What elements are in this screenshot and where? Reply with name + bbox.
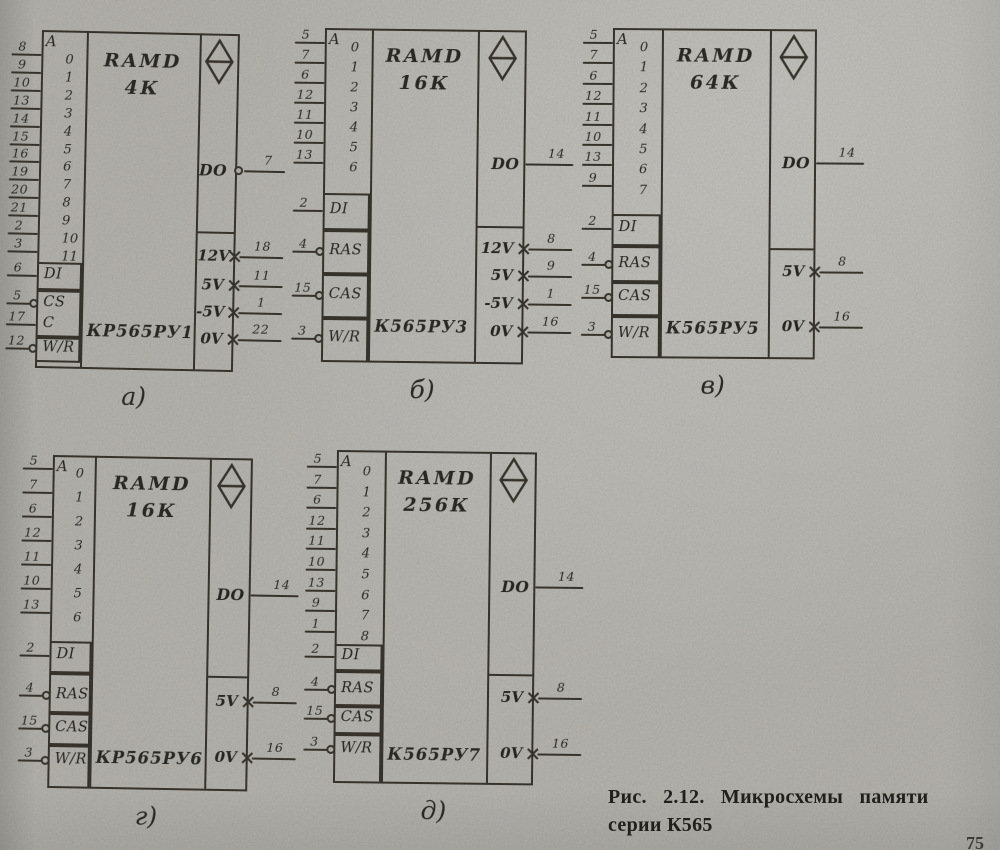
address-bit-digit: 4: [74, 562, 83, 577]
power-pin-number: 22: [246, 321, 276, 337]
power-pin-number: 16: [827, 309, 857, 324]
power-pin-stub: [238, 312, 282, 315]
inversion-bubble: [604, 293, 613, 302]
control-pin-number: 3: [286, 323, 318, 338]
inversion-bubble: [604, 260, 613, 269]
address-pin-number: 12: [289, 87, 321, 102]
address-pin-stub: [295, 42, 325, 44]
power-pin-label: 0V: [770, 317, 804, 335]
address-bit-digit: 7: [63, 178, 72, 193]
power-pin-label: 5V: [477, 266, 513, 284]
address-pin-stub: [294, 82, 324, 84]
address-pin-number: 15: [5, 128, 37, 144]
chip-part-number: КР565РУ1: [87, 321, 195, 342]
power-pin-label: 0V: [488, 744, 522, 762]
address-bit-digit: 8: [62, 196, 71, 211]
address-pin-number: 9: [6, 56, 38, 72]
control-pin-label: DI: [619, 219, 637, 235]
power-pin-stub: [527, 331, 571, 334]
power-pin-number: 9: [536, 258, 566, 273]
address-pin-stub: [582, 164, 612, 166]
power-pin-stub: [537, 753, 581, 756]
address-pin-stub: [293, 162, 323, 164]
power-pin-number: 16: [260, 740, 290, 756]
chip-type-label: RAMD: [662, 42, 770, 70]
address-bit-digit: 2: [75, 514, 84, 529]
address-pin-number: 8: [7, 38, 39, 54]
power-pin-label: 0V: [195, 329, 222, 348]
control-pin-label: W/R: [42, 339, 75, 356]
power-pin-number: 16: [535, 314, 565, 329]
output-pin-stub: [244, 170, 285, 173]
chip-capacity-label: 4К: [86, 74, 200, 103]
control-pin-number: 6: [2, 259, 34, 275]
address-pin-number: 11: [16, 548, 48, 564]
address-bit-digit: 3: [350, 100, 358, 115]
address-pin-number: 11: [289, 107, 321, 122]
address-bit-digit: 10: [61, 231, 78, 246]
address-pin-stub: [583, 42, 613, 44]
address-bit-digit: 5: [73, 586, 82, 601]
control-pin-number: 3: [576, 319, 608, 334]
chip-part-number: К565РУ5: [666, 318, 760, 338]
address-pin-number: 13: [577, 149, 609, 164]
power-pin-label: 12V: [477, 239, 513, 257]
address-bit-digit: 0: [640, 40, 648, 55]
address-pin-stub: [306, 548, 336, 550]
address-bit-digit: 5: [639, 142, 647, 157]
data-output-label: DO: [199, 160, 225, 180]
power-pin-number: 8: [261, 684, 291, 700]
inversion-bubble: [327, 685, 336, 694]
address-pin-number: 16: [4, 146, 36, 162]
address-group-label: A: [329, 30, 340, 48]
control-pin-number: 15: [287, 280, 319, 295]
inversion-bubble: [41, 724, 50, 733]
address-pin-number: 5: [578, 27, 610, 42]
power-pin-stub: [239, 285, 283, 288]
address-pin-stub: [583, 83, 613, 85]
address-pin-number: 6: [578, 68, 610, 83]
chip-type-label: RAMD: [371, 43, 477, 71]
output-pin-stub: [535, 586, 583, 589]
address-bit-digit: 5: [349, 140, 357, 155]
power-pin-label: 12V: [197, 246, 224, 265]
address-bit-digit: 2: [640, 81, 648, 96]
power-pin-stub: [819, 326, 863, 328]
data-output-label: DO: [209, 585, 244, 605]
control-pin-label: CAS: [341, 709, 374, 725]
power-pin-number: 8: [546, 680, 576, 695]
power-pin-stub: [538, 697, 582, 700]
figure-caption-line2: серии К565: [608, 811, 993, 839]
control-pin-number: 2: [288, 195, 320, 210]
control-pin-label: RAS: [341, 680, 374, 696]
chip-capacity-label: 64К: [662, 69, 770, 97]
output-power-separator: [768, 248, 815, 250]
memory-diamond-icon: [216, 463, 247, 510]
inversion-bubble: [327, 714, 336, 723]
inversion-bubble: [314, 334, 323, 343]
power-pin-label: 5V: [208, 692, 238, 711]
address-pin-stub: [295, 62, 325, 64]
address-group-label: A: [617, 30, 628, 48]
control-pin-label: DI: [56, 646, 75, 662]
control-pin-number: 15: [299, 703, 331, 718]
address-pin-stub: [582, 103, 612, 105]
power-pin-label: 0V: [476, 322, 512, 340]
address-pin-number: 10: [289, 127, 321, 142]
address-bit-digit: 4: [639, 122, 647, 137]
address-bit-digit: 3: [362, 526, 370, 541]
control-pin-number: 2: [577, 213, 609, 228]
address-pin-stub: [306, 527, 336, 529]
control-pin-number: 4: [299, 674, 331, 689]
address-pin-number: 5: [18, 452, 50, 468]
address-group-label: A: [46, 32, 57, 50]
output-pin-stub: [816, 162, 864, 164]
address-pin-number: 10: [301, 554, 333, 569]
address-bit-digit: 4: [362, 547, 370, 562]
chip-type-label: RAMD: [384, 465, 489, 493]
address-pin-number: 12: [17, 524, 49, 540]
control-pin-label: DI: [341, 647, 360, 663]
address-group-label: A: [341, 452, 352, 470]
output-pin-number: 14: [541, 146, 571, 161]
chip-type-label: RAMD: [94, 470, 209, 499]
address-pin-stub: [582, 144, 612, 146]
control-pin-number: 2: [15, 639, 47, 655]
page-number: 75: [966, 833, 984, 850]
output-pin-number: 7: [253, 152, 283, 168]
memory-diamond-icon: [498, 457, 529, 503]
address-bit-digit: 4: [64, 124, 73, 139]
control-pin-stub: [582, 228, 612, 230]
address-pin-number: 7: [17, 476, 49, 492]
power-pin-stub: [528, 303, 572, 306]
address-pin-number: 2: [3, 217, 35, 233]
address-bit-digit: 5: [63, 142, 72, 157]
power-pin-label: -5V: [477, 294, 513, 312]
control-pin-number: 17: [1, 308, 33, 324]
output-pin-stub: [251, 594, 299, 597]
inversion-bubble: [326, 745, 335, 754]
chip-part-number: КР565РУ6: [96, 748, 203, 769]
address-pin-stub: [307, 466, 337, 468]
figure-caption-line1: Рис. 2.12. Микросхемы памяти: [608, 783, 993, 811]
address-pin-number: 7: [578, 47, 610, 62]
address-pin-number: 6: [289, 67, 321, 82]
address-pin-number: 9: [300, 595, 332, 610]
power-pin-number: 16: [545, 736, 575, 751]
address-pin-number: 5: [290, 27, 322, 42]
address-bit-digit: 0: [351, 40, 359, 55]
address-pin-number: 13: [5, 92, 37, 108]
data-output-label: DO: [490, 577, 529, 596]
power-pin-stub: [252, 758, 296, 761]
power-pin-label: -5V: [196, 302, 223, 321]
inversion-bubble: [41, 756, 50, 765]
chip-caption-letter: г): [134, 801, 157, 830]
address-pin-stub: [294, 122, 324, 124]
address-pin-number: 11: [577, 108, 609, 123]
power-pin-stub: [528, 275, 572, 278]
control-pin-label: W/R: [618, 325, 650, 341]
address-pin-stub: [294, 102, 324, 104]
address-bit-digit: 0: [65, 52, 74, 67]
control-pin-label: C: [43, 315, 55, 331]
power-pin-number: 1: [246, 294, 276, 310]
address-bit-digit: 6: [63, 160, 72, 175]
address-pin-stub: [305, 610, 335, 612]
chip-capacity-label: 16К: [94, 497, 209, 526]
data-output-label: DO: [771, 153, 810, 172]
address-bit-digit: 7: [361, 608, 369, 623]
address-bit-digit: 6: [639, 163, 647, 178]
address-bit-digit: 7: [639, 183, 647, 198]
power-pin-label: 5V: [489, 688, 523, 706]
address-pin-number: 13: [15, 596, 47, 612]
address-bit-digit: 5: [361, 567, 369, 582]
inversion-bubble: [604, 330, 613, 339]
address-pin-number: 7: [302, 471, 334, 486]
control-pin-stub: [304, 656, 334, 658]
power-pin-number: 18: [247, 238, 277, 254]
address-bit-digit: 3: [64, 106, 73, 121]
data-output-label: DO: [478, 154, 519, 173]
power-pin-stub: [238, 339, 282, 342]
address-pin-number: 1: [300, 615, 332, 630]
control-pin-number: 15: [576, 282, 608, 297]
chip-caption-letter: б): [409, 375, 434, 404]
memory-chip-diagram: A507162123114105136972DI4RAS15CAS3W/RRAM…: [611, 28, 817, 359]
power-pin-number: 1: [536, 286, 566, 301]
address-bit-digit: 6: [361, 588, 369, 603]
address-bit-digit: 1: [75, 490, 84, 505]
chip-caption-letter: а): [121, 382, 146, 412]
memory-chip-diagram: A50716212311410513697182DI4RAS15CAS3W/RR…: [333, 450, 537, 785]
output-pin-stub: [525, 163, 573, 166]
control-pin-label: W/R: [328, 329, 360, 345]
power-pin-stub: [528, 249, 572, 252]
chip-title-block: RAMD256К: [384, 465, 490, 520]
address-bit-digit: 1: [350, 60, 358, 75]
control-pin-number: 2: [299, 641, 331, 656]
control-pin-label: RAS: [329, 242, 362, 258]
memory-diamond-icon: [778, 34, 808, 80]
chip-title-block: RAMD16К: [371, 43, 478, 98]
address-pin-number: 13: [288, 147, 320, 162]
address-bit-digit: 2: [64, 88, 73, 103]
control-pin-label: CAS: [618, 288, 651, 304]
memory-chip-diagram: A5071621231141051362DI4RAS15CAS3W/RRAMD1…: [47, 455, 253, 791]
address-pin-number: 10: [16, 572, 48, 588]
address-bit-digit: 9: [62, 214, 71, 229]
control-pin-number: 4: [287, 236, 319, 251]
control-pin-label: DI: [330, 201, 349, 217]
control-pin-stub: [293, 210, 323, 212]
address-bit-digit: 8: [361, 629, 369, 644]
output-pin-number: 14: [832, 145, 862, 160]
address-pin-number: 11: [301, 533, 333, 548]
address-group-label: A: [57, 457, 68, 475]
address-bit-digit: 2: [350, 80, 358, 95]
address-bit-digit: 1: [65, 70, 74, 85]
address-pin-number: 6: [17, 500, 49, 516]
control-pin-label: W/R: [340, 740, 372, 756]
address-pin-stub: [305, 589, 335, 591]
chip-caption-letter: д): [420, 796, 446, 825]
address-pin-number: 10: [577, 129, 609, 144]
control-pin-number: 4: [576, 249, 608, 264]
chip-part-number: К565РУ3: [374, 317, 468, 337]
power-pin-label: 0V: [207, 748, 237, 767]
address-pin-number: 5: [302, 451, 334, 466]
control-pin-label: DI: [44, 266, 63, 282]
address-bit-digit: 0: [76, 466, 85, 481]
control-pin-label: RAS: [56, 686, 89, 703]
memory-diamond-icon: [204, 38, 235, 85]
address-pin-stub: [294, 142, 324, 144]
control-pin-label: W/R: [55, 751, 87, 768]
memory-chip-diagram: A80911021331441551661972082192103116DI5C…: [35, 30, 240, 372]
address-pin-number: 21: [3, 199, 35, 215]
chip-type-label: RAMD: [86, 47, 200, 76]
control-pin-label: CAS: [55, 719, 88, 736]
control-pin-label: CS: [43, 294, 65, 310]
address-pin-number: 20: [4, 181, 36, 197]
address-bit-digit: 3: [74, 538, 83, 553]
address-bit-digit: 3: [639, 101, 647, 116]
address-bit-digit: 4: [350, 120, 358, 135]
address-pin-number: 12: [577, 88, 609, 103]
memory-chip-diagram: A5071621231141051362DI4RAS15CAS3W/RRAMD1…: [321, 28, 527, 364]
control-pin-number: 3: [298, 734, 330, 749]
address-pin-number: 3: [2, 235, 34, 251]
power-pin-stub: [253, 702, 297, 705]
address-pin-stub: [582, 123, 612, 125]
figure-caption: Рис. 2.12. Микросхемы памяти серии К565: [608, 783, 993, 839]
control-pin-label: CAS: [329, 286, 362, 302]
power-pin-number: 8: [827, 254, 857, 269]
power-pin-number: 8: [536, 231, 566, 246]
address-pin-number: 19: [4, 164, 36, 180]
inversion-bubble: [315, 291, 324, 300]
address-pin-number: 14: [5, 110, 37, 126]
chip-part-number: К565РУ7: [387, 745, 481, 765]
address-pin-stub: [583, 62, 613, 64]
address-pin-stub: [306, 569, 336, 571]
scanned-book-page: A80911021331441551661972082192103116DI5C…: [0, 0, 1000, 850]
address-pin-number: 7: [290, 47, 322, 62]
address-pin-number: 12: [301, 512, 333, 527]
address-pin-number: 9: [577, 170, 609, 185]
chip-capacity-label: 16К: [371, 70, 477, 98]
address-pin-stub: [305, 630, 335, 632]
address-pin-number: 6: [301, 492, 333, 507]
address-bit-digit: 0: [363, 464, 371, 479]
inversion-bubble: [315, 247, 324, 256]
output-inversion-bubble: [234, 166, 243, 175]
address-bit-digit: 1: [640, 61, 648, 76]
address-pin-stub: [307, 486, 337, 488]
address-pin-stub: [306, 507, 336, 509]
power-pin-label: 5V: [770, 262, 804, 280]
control-pin-label: RAS: [618, 255, 651, 271]
output-pin-number: 14: [267, 577, 297, 593]
address-pin-stub: [582, 185, 612, 187]
chip-capacity-label: 256К: [384, 492, 489, 520]
chip-caption-letter: в): [700, 371, 725, 400]
inversion-bubble: [42, 691, 51, 700]
address-bit-digit: 2: [362, 506, 370, 521]
memory-diamond-icon: [487, 35, 518, 81]
address-bit-digit: 6: [349, 160, 357, 175]
address-pin-number: 13: [300, 574, 332, 589]
power-pin-label: 5V: [197, 275, 224, 294]
address-bit-digit: 6: [73, 610, 82, 625]
power-pin-stub: [819, 271, 863, 273]
address-bit-digit: 1: [362, 485, 370, 500]
chip-title-block: RAMD4К: [86, 47, 200, 103]
chip-title-block: RAMD16К: [94, 470, 210, 526]
address-pin-number: 10: [6, 74, 38, 90]
power-pin-stub: [239, 256, 283, 259]
output-pin-number: 14: [551, 569, 581, 584]
chip-title-block: RAMD64К: [662, 42, 770, 97]
power-pin-number: 11: [247, 267, 277, 283]
